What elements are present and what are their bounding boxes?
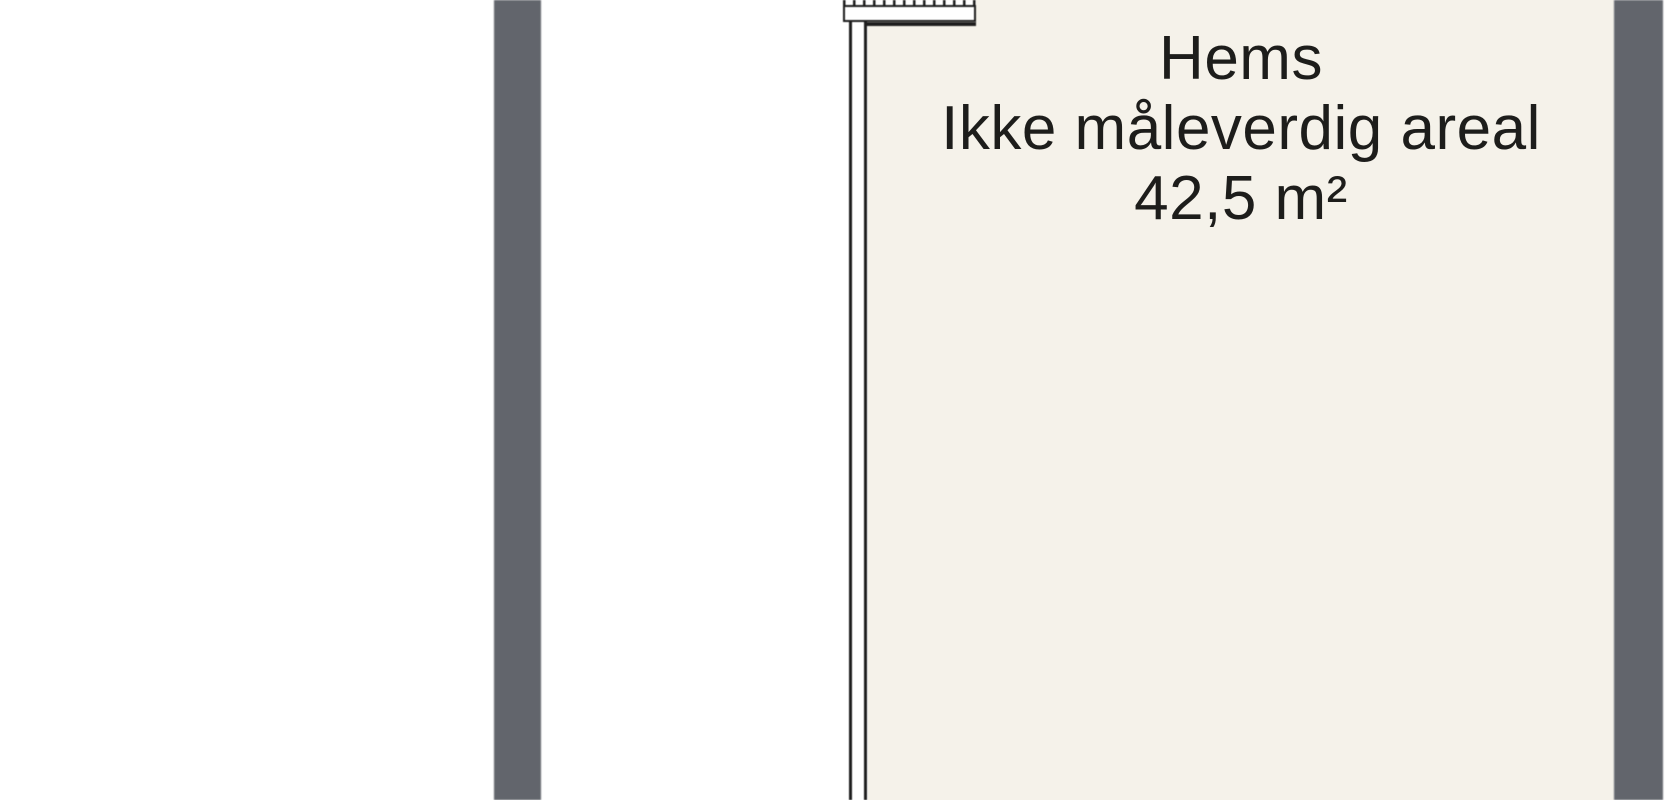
room-label: Hems Ikke måleverdig areal 42,5 m²	[868, 24, 1614, 234]
floorplan-canvas: Hems Ikke måleverdig areal 42,5 m²	[0, 0, 1670, 800]
room-title: Hems	[868, 24, 1614, 94]
room-wall-left	[849, 20, 867, 800]
wall-band-right	[1614, 0, 1663, 800]
stair-landing-bar	[843, 5, 976, 22]
wall-band-left	[494, 0, 541, 800]
stair-landing	[843, 0, 976, 22]
room-area: 42,5 m²	[868, 164, 1614, 234]
room-subtitle: Ikke måleverdig areal	[868, 94, 1614, 164]
